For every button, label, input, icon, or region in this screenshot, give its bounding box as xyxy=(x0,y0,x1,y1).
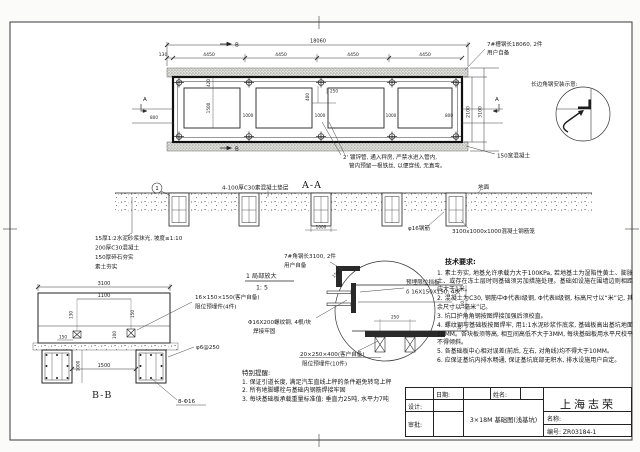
reminder-item-1: 1. 保证引道长度, 满足汽车直线上秤的条件避免转弯上秤 xyxy=(242,379,408,387)
section-aa-label: A-A xyxy=(301,180,322,191)
detail1-bolt-note-2: 焊接牢固 xyxy=(253,327,276,335)
detail1-anchor-note-1: 20×250×400(客户自备) xyxy=(300,350,365,358)
aa-cushion-note: 4-100厚C30素混凝土垫层 xyxy=(222,184,289,192)
plan-dim-gap-2: 1000 xyxy=(315,113,326,118)
section-bb-label: B-B xyxy=(92,390,112,401)
special-reminder: 特别提醒: 1. 保证引道长度, 满足汽车直线上秤的条件避免转弯上秤 2. 所有… xyxy=(242,369,408,404)
bb-dim-100: 100 xyxy=(112,331,117,339)
detail1-baffle-note-1: 预埋限位挡板 xyxy=(406,278,440,286)
tech-item-3: 3. 坑口护角角钢按图焊接加强后须校直。 xyxy=(437,313,633,321)
plan-dim-seg-1: 4450 xyxy=(203,52,215,58)
bb-dim-3100: 3100 xyxy=(98,281,111,287)
plan-marker-b-top: B xyxy=(235,43,239,49)
corner-detail-title: 长边角钢安装示意: xyxy=(531,80,578,88)
aa-layer-note-1: 200厚C30混凝土 xyxy=(95,244,139,252)
titleblock-date-label: 日期: xyxy=(436,390,450,399)
plan-dim-inner-h: 2100 xyxy=(466,106,472,118)
aa-cage-note: 3100x1000x1000混凝土钢筋笼 xyxy=(452,227,535,235)
detail1-title: 1 局部放大 xyxy=(246,272,277,280)
plan-dim-opening-h: 1500 xyxy=(206,102,211,113)
bb-dim-150-right: 150 xyxy=(130,310,135,318)
detail1-dim-250: 250 xyxy=(391,315,399,320)
titleblock-approve-label: 审批: xyxy=(408,420,422,429)
plan-marker-a-left: A xyxy=(143,97,147,103)
channel-note-line1: 7#槽钢长18060, 2件 xyxy=(487,40,543,48)
titleblock-name-label: 姓名: xyxy=(493,390,507,399)
titleblock-company: 上海志荣 xyxy=(544,396,632,412)
tech-requirements: 技术要求: 1. 素土夯实, 地基允许承载力大于100KPa, 若地基土为湿陷性… xyxy=(437,258,633,367)
plan-dim-edge-right: 800 xyxy=(445,113,453,118)
plan-dim-conduit-y: 400 xyxy=(305,93,310,101)
plan-dim-edge-left: 800 xyxy=(150,115,158,120)
tech-item-1: 1. 素土夯实, 地基允许承载力大于100KPa, 若地基土为湿陷性黄土、膨胀土… xyxy=(437,270,633,295)
detail1-angle-note-2: 用户自备 xyxy=(284,261,307,269)
plan-dim-total-label: 18060 xyxy=(310,39,326,45)
bb-dim-1000: 1000 xyxy=(76,360,81,371)
aa-rebar-note: φ16钢筋 xyxy=(408,224,430,232)
bb-dim-1500: 1500 xyxy=(98,363,111,369)
tech-requirements-title: 技术要求: xyxy=(445,258,633,268)
plan-dim-opening-top: 420 xyxy=(206,79,211,87)
bb-dim-130: 130 xyxy=(69,311,74,319)
aa-ground-label: 地面 xyxy=(478,183,490,191)
reminder-item-2: 2. 所有地脚螺栓与基础内钢筋焊接牢固 xyxy=(242,387,408,395)
plan-dim-gap-1: 1000 xyxy=(243,113,254,118)
aa-layer-note-0: 15厚1:2水泥砂浆抹光, 坡度≤1:10 xyxy=(95,234,183,242)
plan-dim-seg-3: 4450 xyxy=(347,52,359,58)
plan-dim-seg-0: 130 xyxy=(159,52,168,58)
detail1-bolt-note-1: Φ16X200螺纹钢, 4根/块 xyxy=(248,318,311,326)
tech-item-6: 6. 应保证基坑内排水畅通, 保证基坑底部无积水, 排水设施用户自定。 xyxy=(437,357,633,365)
plan-dim-outer-h: 3100 xyxy=(478,106,484,118)
special-reminder-title: 特别提醒: xyxy=(242,369,408,378)
channel-note-line2: 用户自备 xyxy=(487,49,510,57)
bb-stirrup-note: φ6@250 xyxy=(196,345,220,351)
titleblock-number: 编号: ZR03184-1 xyxy=(547,427,596,436)
aa-bubble-number: 1 xyxy=(155,186,159,192)
detail1-scale: 1: 5 xyxy=(256,285,268,292)
detail1-base-plate xyxy=(365,331,445,337)
plan-dim-conduit-x: 250 xyxy=(330,89,338,94)
reminder-item-3: 3. 每块基础板承载重量标准值: 垂直力25吨, 水平力7吨 xyxy=(242,396,408,404)
pipe-note-line1: 2' 镀锌管, 通入秤房, 严禁水进入管内, xyxy=(343,153,437,161)
tech-item-4: 4. 螺纹钢与基础板按图焊牢, 用1:1水泥砂浆作底浆, 基础板高出基坑地面10… xyxy=(437,322,633,347)
pipe-note-line2: 管内预留一根铁丝, 以便穿线, 无直弯。 xyxy=(349,162,446,170)
titleblock-drawing-name-label: 名称: xyxy=(547,414,561,423)
detail1-baffle-plate xyxy=(351,283,356,313)
plan-dim-seg-2: 4450 xyxy=(275,52,287,58)
drawing-sheet: 18060 B B 130 4450 4450 4450 4450 2100 3… xyxy=(0,0,640,452)
titleblock-drawing-title: 3×18M 基础图(浅基坑) xyxy=(464,415,543,424)
aa-layer-note-2: 150厚碎石夯实 xyxy=(95,253,134,261)
tech-item-5: 5. 各基础板中心相对误差(前后, 左右, 对角线)均不得大于10MM。 xyxy=(437,348,633,356)
bb-dim-1100: 1100 xyxy=(98,293,111,299)
concrete-note: 150宽混凝土 xyxy=(497,152,530,160)
aa-dim-pit-label: 1000 xyxy=(316,225,327,230)
plan-marker-a-right: A xyxy=(495,97,499,103)
bb-plate-note-2: 限位预埋件(4件) xyxy=(195,303,237,311)
bb-rebar-note: 8-Φ16 xyxy=(178,399,196,405)
titleblock-design-label: 设计: xyxy=(408,402,422,411)
bb-dim-150-left: 150 xyxy=(59,335,67,340)
tech-item-2: 2. 混凝土为C30, 钢筋中Φ代表Ⅰ级钢, Φ代表Ⅱ级钢, 标高尺寸以“米”记… xyxy=(437,295,633,312)
bb-cushion xyxy=(33,343,178,350)
bb-plate-note-1: 16×150×150(客户自备) xyxy=(195,293,260,301)
detail1-anchor-note-2: 限位预埋件(10件) xyxy=(302,360,347,368)
aa-layer-note-3: 素土夯实 xyxy=(95,263,118,271)
plan-dim-seg-4: 4450 xyxy=(419,52,431,58)
detail1-angle-note-1: 7#角钢长3100, 2件 xyxy=(284,252,336,260)
plan-dim-gap-3: 1000 xyxy=(386,113,397,118)
angle-steel-leg-v xyxy=(588,100,591,110)
plan-marker-b-bottom: B xyxy=(235,147,239,153)
